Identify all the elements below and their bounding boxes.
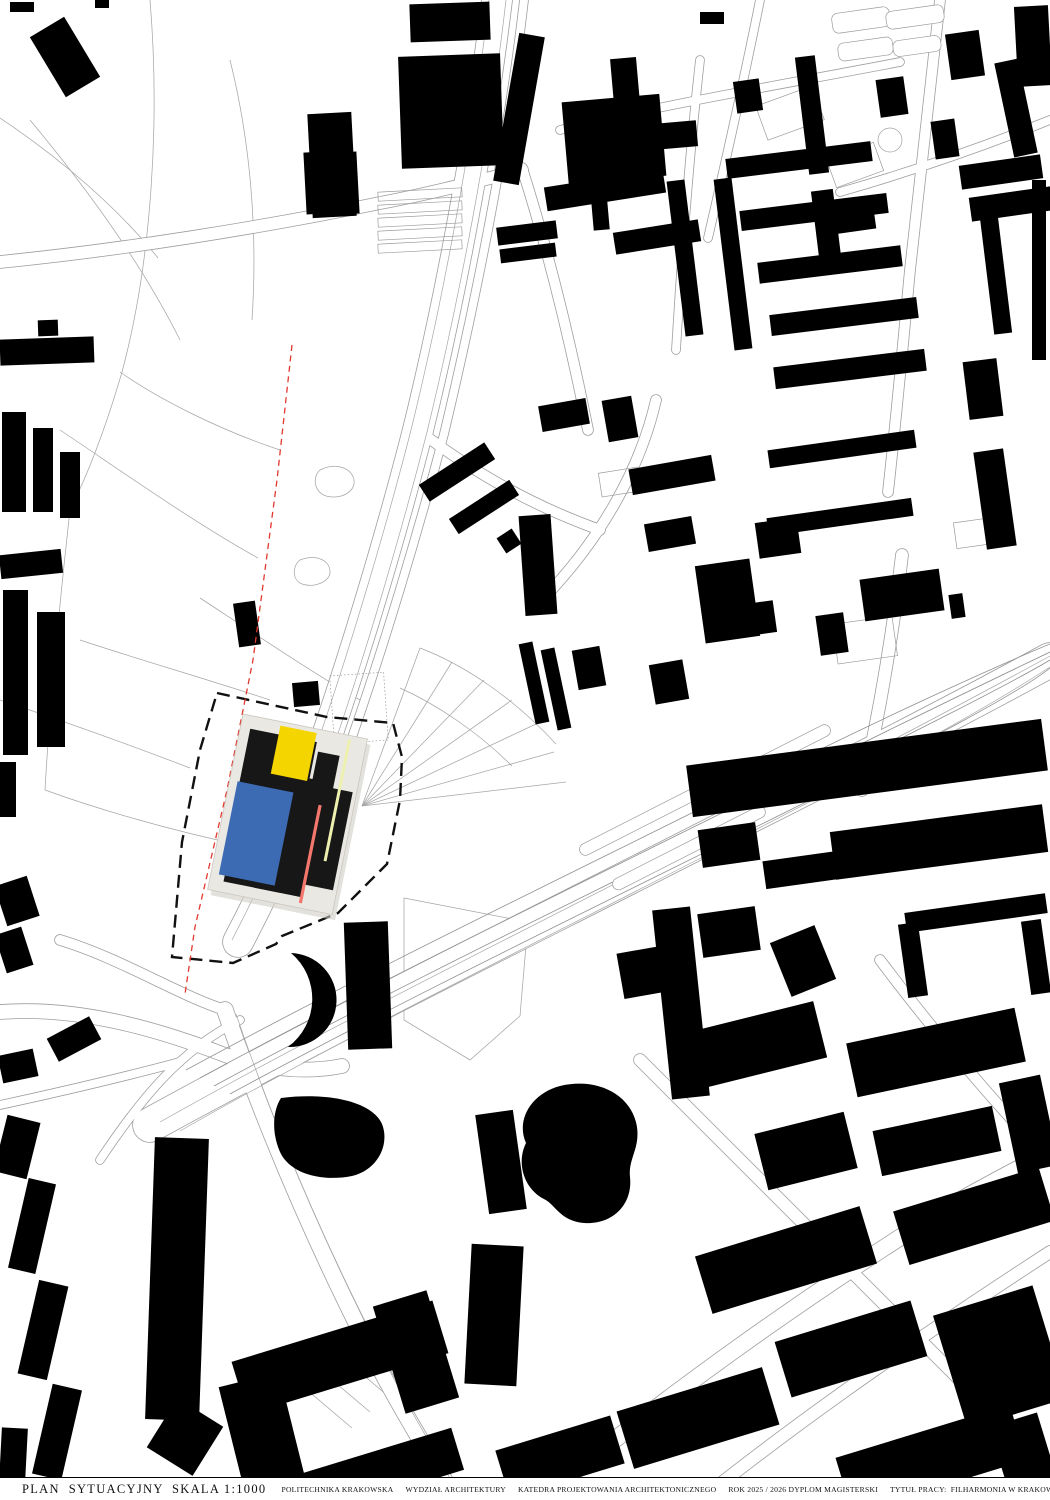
building <box>0 336 94 365</box>
building <box>3 590 28 755</box>
building <box>33 428 53 512</box>
site-plan-map <box>0 0 1050 1477</box>
building <box>945 30 985 80</box>
building <box>700 12 724 24</box>
building <box>60 452 80 518</box>
building <box>464 1244 523 1387</box>
building <box>38 320 59 337</box>
building <box>1014 5 1050 87</box>
building <box>1032 180 1046 360</box>
titlebar: PLAN SYTUACYJNY SKALA 1:1000 POLITECHNIK… <box>0 1477 1050 1500</box>
building <box>344 921 392 1049</box>
building <box>145 1137 209 1421</box>
building <box>292 681 320 707</box>
building <box>303 152 326 215</box>
building <box>562 94 667 184</box>
building <box>10 2 34 12</box>
building <box>755 517 802 558</box>
building <box>37 612 65 747</box>
titlebar-item: POLITECHNIKA KRAKOWSKA <box>281 1485 393 1494</box>
building <box>0 762 16 817</box>
map-svg <box>0 0 1050 1477</box>
building <box>815 612 848 656</box>
building <box>610 57 640 105</box>
building <box>698 822 761 868</box>
building <box>0 1427 28 1477</box>
building <box>336 152 359 215</box>
titlebar-items: POLITECHNIKA KRAKOWSKAWYDZIAŁ ARCHITEKTU… <box>281 1485 1050 1494</box>
plan-title: PLAN SYTUACYJNY SKALA 1:1000 <box>22 1482 266 1497</box>
titlebar-item: WYDZIAŁ ARCHITEKTURY <box>406 1485 507 1494</box>
titlebar-item: ROK 2025 / 2026 DYPLOM MAGISTERSKI <box>728 1485 878 1494</box>
building <box>2 412 26 512</box>
building <box>697 906 761 958</box>
building <box>654 120 698 150</box>
building <box>409 2 490 43</box>
building <box>95 0 109 8</box>
building <box>398 53 504 168</box>
building <box>733 78 763 113</box>
titlebar-item: KATEDRA PROJEKTOWANIA ARCHITEKTONICZNEGO <box>518 1485 716 1494</box>
titlebar-item: TYTUŁ PRACY: FILHARMONIA W KRAKOWIE <box>890 1485 1050 1494</box>
site-plan-sheet: PLAN SYTUACYJNY SKALA 1:1000 POLITECHNIK… <box>0 0 1050 1500</box>
building <box>695 559 760 644</box>
building <box>875 76 908 118</box>
building <box>963 358 1004 420</box>
building <box>649 659 689 704</box>
